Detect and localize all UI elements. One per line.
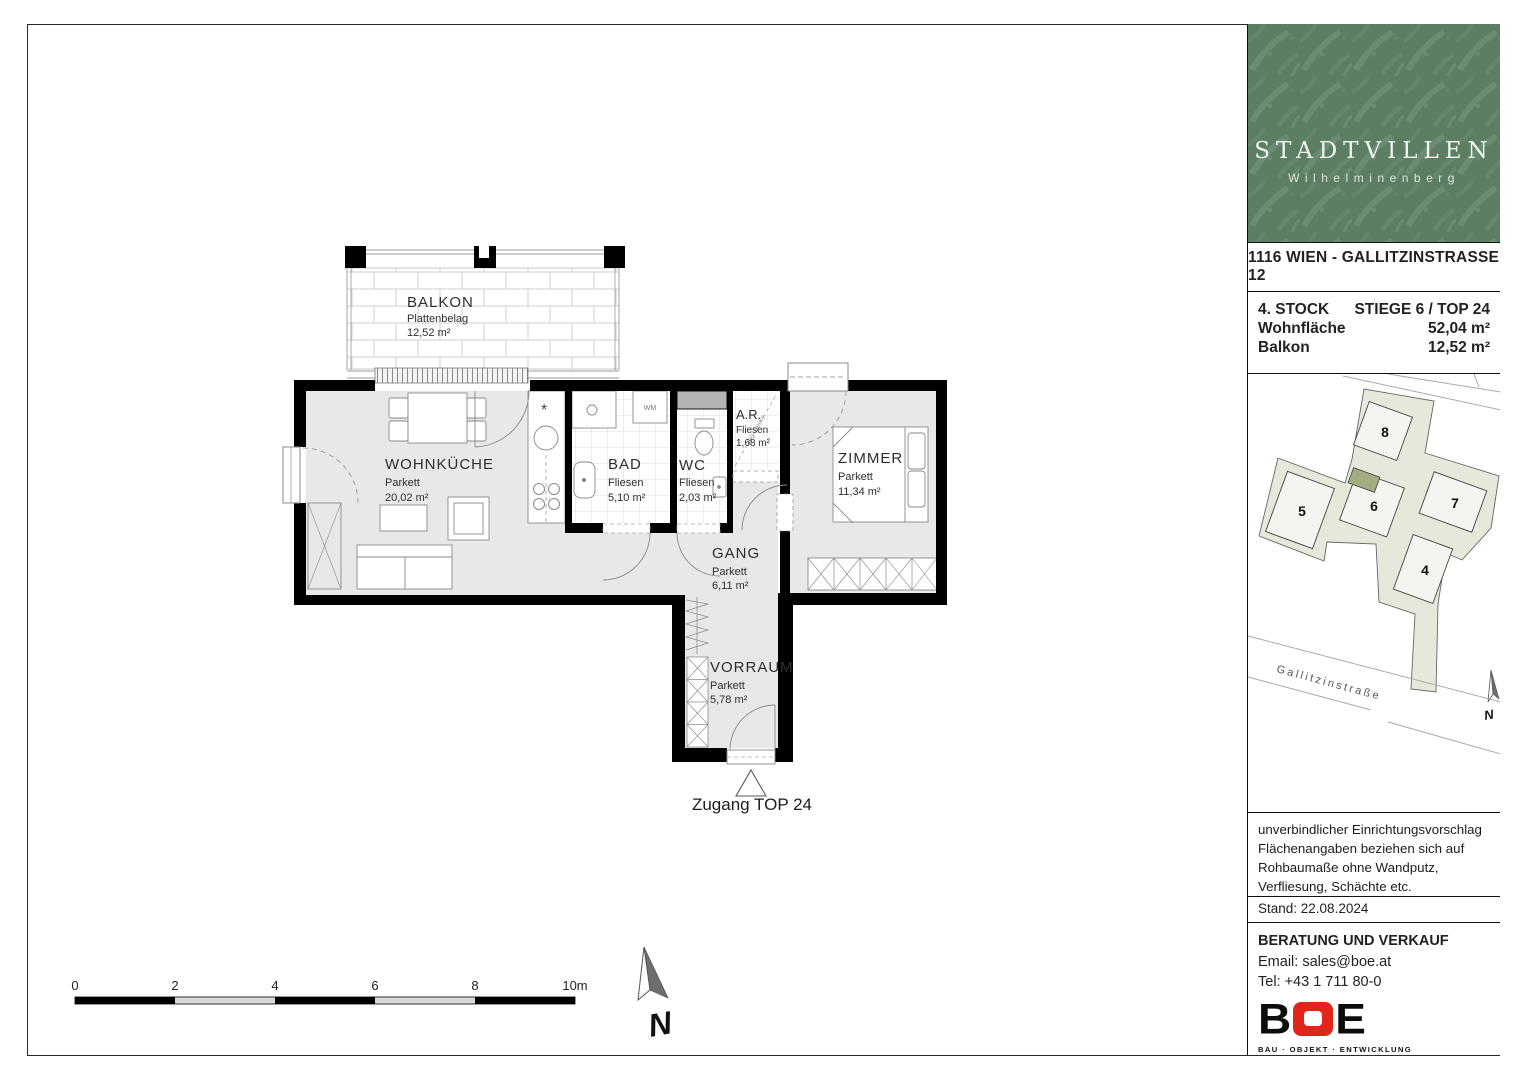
unit-floor-label: 4. STOCK xyxy=(1258,300,1329,319)
contact-tel: Tel: +43 1 711 80-0 xyxy=(1258,972,1490,993)
logo-pattern: STADTVILLEN Wilhelminenberg xyxy=(1248,24,1500,243)
disclaimer-line: Verfliesung, Schächte etc. xyxy=(1258,877,1490,896)
svg-text:Parkett: Parkett xyxy=(712,566,747,578)
svg-text:12,52 m²: 12,52 m² xyxy=(407,327,451,339)
svg-text:20,02 m²: 20,02 m² xyxy=(385,492,429,504)
hall-wardrobe xyxy=(687,657,708,747)
disclaimer-line: Rohbaumaße ohne Wandputz, xyxy=(1258,858,1490,877)
stand-text: Stand: 22.08.2024 xyxy=(1258,901,1490,916)
entrance-triangle-icon xyxy=(736,770,766,796)
svg-text:1,68 m²: 1,68 m² xyxy=(736,438,771,449)
boe-tagline: BAU · OBJEKT · ENTWICKLUNG xyxy=(1258,1040,1490,1055)
svg-text:Fliesen: Fliesen xyxy=(736,425,768,436)
boe-letter-b: B xyxy=(1258,1001,1291,1036)
status-date: Stand: 22.08.2024 xyxy=(1248,897,1500,923)
svg-text:WOHNKÜCHE: WOHNKÜCHE xyxy=(385,455,494,473)
building-5-label: 5 xyxy=(1298,503,1306,519)
unit-stair-top: STIEGE 6 / TOP 24 xyxy=(1354,300,1490,319)
label-bath: BAD Fliesen 5,10 m² xyxy=(608,456,646,504)
north-arrow-icon: N xyxy=(638,947,675,1044)
disclaimer-line: Flächenangaben beziehen sich auf xyxy=(1258,839,1490,858)
scale-tick: 4 xyxy=(271,978,278,993)
svg-text:Parkett: Parkett xyxy=(385,477,420,489)
brand-logo: STADTVILLEN Wilhelminenberg xyxy=(1248,24,1500,243)
building-6-label: 6 xyxy=(1370,498,1378,514)
scale-tick: 6 xyxy=(371,978,378,993)
unit-row: 4. STOCK STIEGE 6 / TOP 24 xyxy=(1258,300,1490,319)
svg-text:Fliesen: Fliesen xyxy=(608,477,643,489)
contact-email: Email: sales@boe.at xyxy=(1258,952,1490,973)
floorplan-drawing: * WM abg. Decke xyxy=(0,0,1247,1080)
balcony xyxy=(345,246,625,383)
washing-machine-label: WM xyxy=(644,405,657,412)
svg-text:6,11 m²: 6,11 m² xyxy=(712,580,749,592)
site-plan: 8 5 6 7 4 Gallitzinstraße N xyxy=(1248,374,1500,813)
svg-text:ZIMMER: ZIMMER xyxy=(838,450,903,467)
scale-tick: 0 xyxy=(71,978,78,993)
building-7-label: 7 xyxy=(1451,495,1459,511)
floorplan-sheet: * WM abg. Decke xyxy=(0,0,1527,1080)
boe-logo: B E BAU · OBJEKT · ENTWICKLUNG xyxy=(1258,1000,1490,1055)
svg-text:BAD: BAD xyxy=(608,456,642,473)
contact-block: BERATUNG UND VERKAUF Email: sales@boe.at… xyxy=(1248,923,1500,1054)
svg-text:Parkett: Parkett xyxy=(838,471,873,483)
scale-tick: 2 xyxy=(171,978,178,993)
boe-o-icon xyxy=(1293,1002,1333,1036)
unit-info: 4. STOCK STIEGE 6 / TOP 24 Wohnfläche 52… xyxy=(1248,292,1500,374)
living-area-label: Wohnfläche xyxy=(1258,319,1346,338)
kitchen-star-marker: * xyxy=(541,402,547,419)
svg-text:5,10 m²: 5,10 m² xyxy=(608,492,646,504)
building-4-label: 4 xyxy=(1421,562,1429,578)
svg-text:Fliesen: Fliesen xyxy=(679,477,714,489)
site-north-arrow-icon: N xyxy=(1483,670,1499,723)
north-letter: N xyxy=(645,1004,675,1044)
balcony-value: 12,52 m² xyxy=(1428,338,1490,357)
svg-text:A.R.: A.R. xyxy=(736,407,761,422)
scale-bar: 0 2 4 6 8 10m xyxy=(71,978,587,1004)
address-text: 1116 WIEN - GALLITZINSTRASSE 12 xyxy=(1248,249,1500,285)
svg-text:Plattenbelag: Plattenbelag xyxy=(407,313,468,325)
svg-text:11,34 m²: 11,34 m² xyxy=(838,486,881,498)
svg-text:2,03 m²: 2,03 m² xyxy=(679,492,717,504)
balcony-label: Balkon xyxy=(1258,338,1310,357)
svg-text:Parkett: Parkett xyxy=(710,680,745,692)
building-8-label: 8 xyxy=(1381,424,1389,440)
logo-subtitle: Wilhelminenberg xyxy=(1288,171,1460,185)
scale-tick: 8 xyxy=(471,978,478,993)
svg-text:VORRAUM: VORRAUM xyxy=(710,659,794,676)
living-area-value: 52,04 m² xyxy=(1428,319,1490,338)
contact-heading: BERATUNG UND VERKAUF xyxy=(1258,931,1490,952)
address-bar: 1116 WIEN - GALLITZINSTRASSE 12 xyxy=(1248,243,1500,292)
svg-text:GANG: GANG xyxy=(712,545,760,562)
svg-text:WC: WC xyxy=(679,457,706,474)
logo-title: STADTVILLEN xyxy=(1254,138,1493,164)
entrance-label: Zugang TOP 24 xyxy=(692,795,812,814)
unit-row: Balkon 12,52 m² xyxy=(1258,338,1490,357)
unit-row: Wohnfläche 52,04 m² xyxy=(1258,319,1490,338)
disclaimer-line: unverbindlicher Einrichtungsvorschlag xyxy=(1258,820,1490,839)
sidebar: STADTVILLEN Wilhelminenberg 1116 WIEN - … xyxy=(1247,24,1500,1055)
svg-text:BALKON: BALKON xyxy=(407,294,474,311)
disclaimer: unverbindlicher Einrichtungsvorschlag Fl… xyxy=(1248,813,1500,897)
kitchen-counter: * xyxy=(528,391,565,523)
scale-tick: 10m xyxy=(562,978,587,993)
site-north-letter: N xyxy=(1483,706,1495,723)
svg-text:5,78 m²: 5,78 m² xyxy=(710,694,748,706)
boe-letter-e: E xyxy=(1335,1001,1366,1036)
site-plan-map: 8 5 6 7 4 Gallitzinstraße N xyxy=(1248,374,1500,813)
street-label: Gallitzinstraße xyxy=(1275,663,1382,702)
shaft xyxy=(677,391,727,409)
